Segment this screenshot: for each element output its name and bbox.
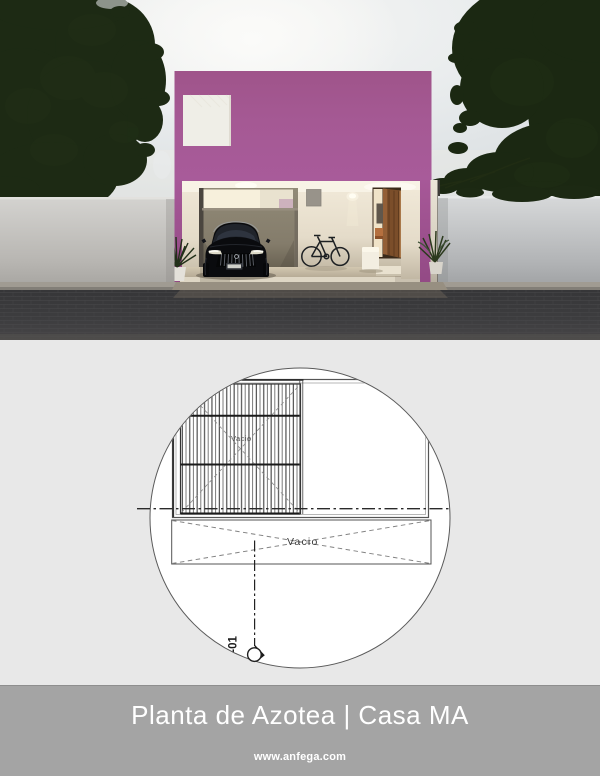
svg-text:A-01: A-01 [228,635,240,661]
svg-text:Vacio: Vacio [231,434,252,443]
svg-text:Vacio: Vacio [287,536,319,548]
